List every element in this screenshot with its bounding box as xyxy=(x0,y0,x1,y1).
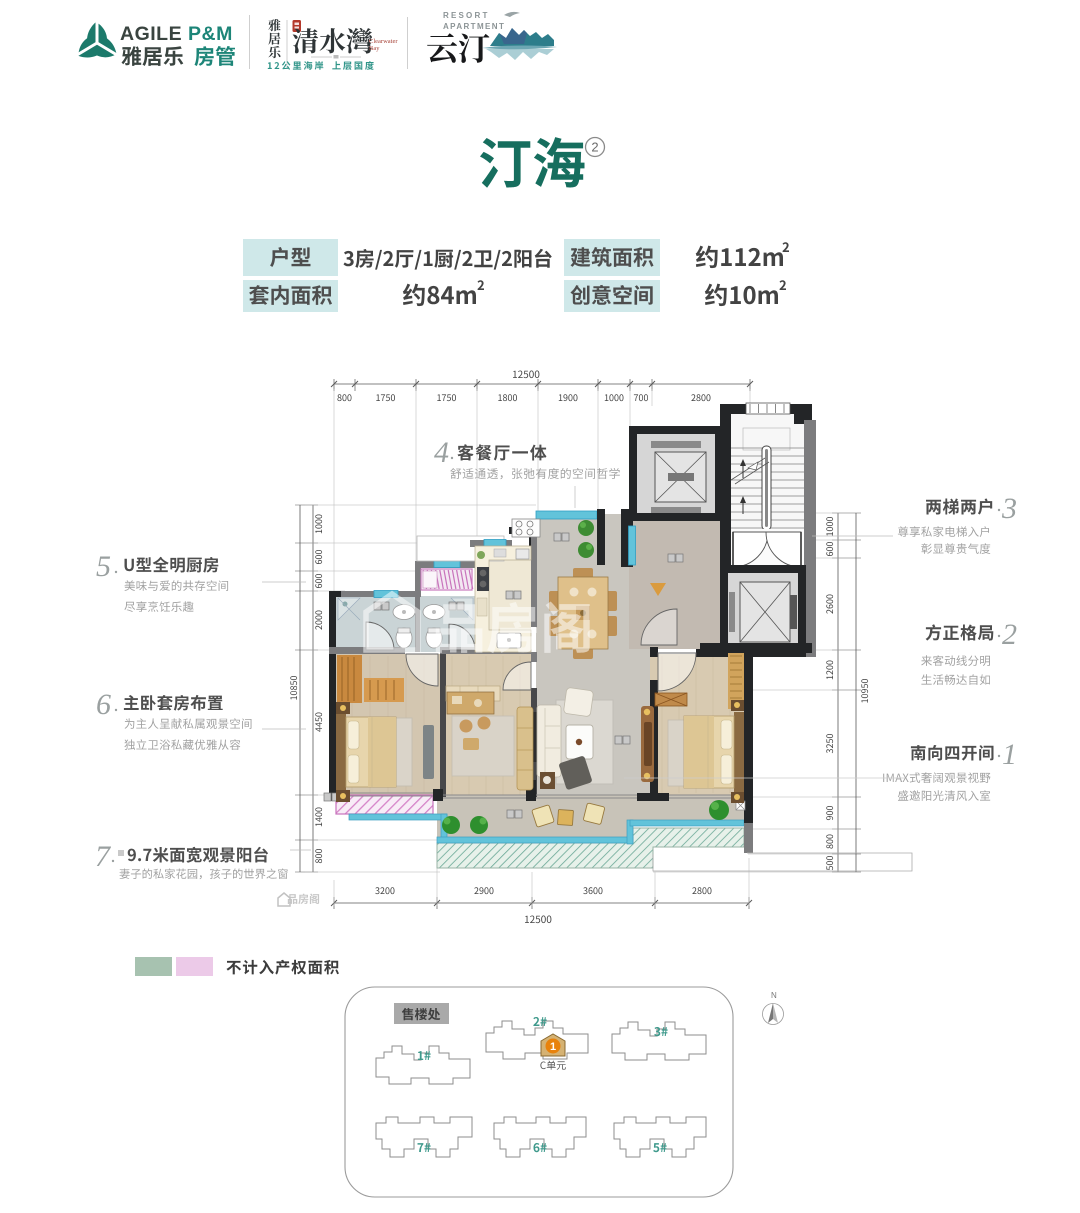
svg-text:4: 4 xyxy=(434,436,449,469)
svg-text:2: 2 xyxy=(1002,618,1017,651)
svg-text:1: 1 xyxy=(550,1041,556,1053)
svg-text:5: 5 xyxy=(96,550,111,583)
svg-text:N: N xyxy=(771,991,777,1000)
svg-text:3: 3 xyxy=(1001,492,1017,525)
svg-text:6: 6 xyxy=(96,688,111,721)
svg-text:7: 7 xyxy=(95,840,112,873)
svg-text:1: 1 xyxy=(1002,738,1017,771)
